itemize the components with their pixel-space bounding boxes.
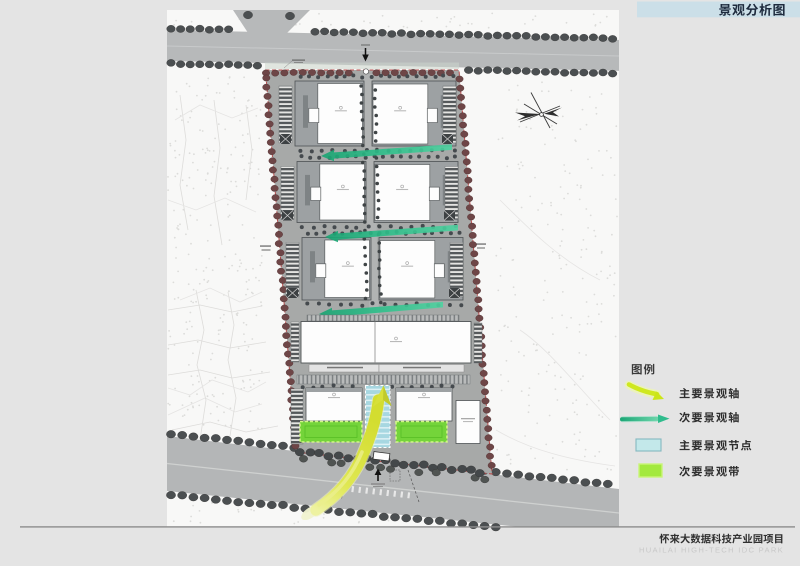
- svg-text:HUAILAI HIGH-TECH IDC PARK: HUAILAI HIGH-TECH IDC PARK: [639, 546, 784, 555]
